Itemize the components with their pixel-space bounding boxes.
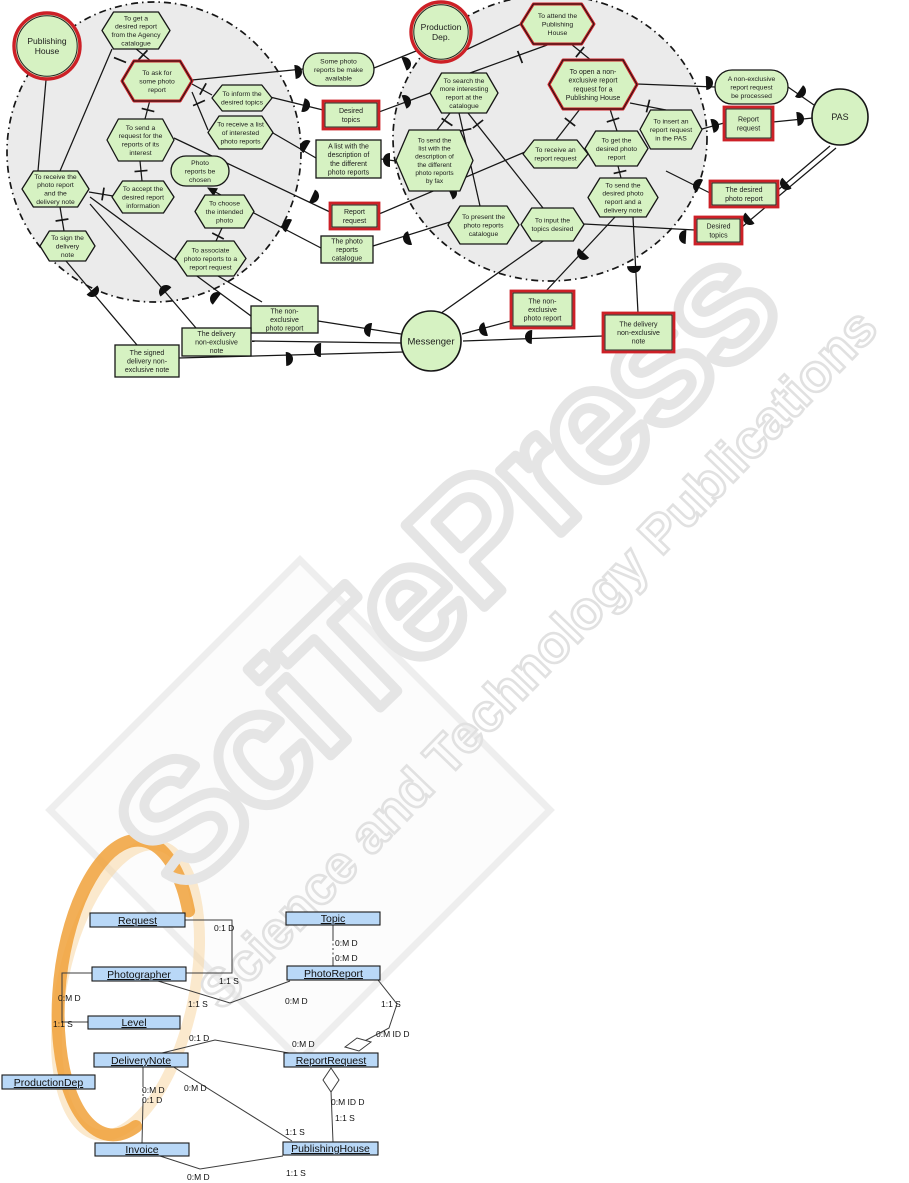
task-receive-photo-report-and-delivery-note: To receive thephoto reportand thedeliver…: [22, 171, 89, 207]
node-label: Desiredtopics: [339, 108, 363, 124]
actor-label: Messenger: [408, 336, 455, 347]
dependency-direction-marker: [710, 118, 720, 133]
task-ask-for-some-photo-report: To ask forsome photoreport: [122, 61, 192, 101]
dependency-direction-marker: [294, 64, 302, 79]
task-insert-report-request-in-pas: To insert anreport requestin the PAS: [640, 110, 702, 149]
resource-desired-topics-right: Desiredtopics: [695, 217, 742, 244]
entity-label: DeliveryNote: [111, 1055, 171, 1067]
cardinality-label: 0:M D: [184, 1083, 207, 1093]
resource-the-signed-delivery-non-exclusive-note: The signeddelivery non-exclusive note: [115, 345, 179, 377]
resource-report-request-left: Reportrequest: [330, 203, 379, 229]
figure-svg: SciTePressScience and Technology Publica…: [0, 0, 909, 1183]
entity-label: ReportRequest: [296, 1055, 367, 1067]
entity-request: Request: [90, 913, 185, 927]
node-label: The non-exclusivephoto report: [524, 298, 562, 322]
dependency-direction-marker: [286, 352, 293, 366]
decomposition-bar: [135, 170, 148, 171]
node-label: To insert anreport requestin the PAS: [650, 118, 692, 142]
task-inform-desired-topics: To inform thedesired topics: [212, 85, 272, 111]
actor-messenger: Messenger: [401, 311, 461, 371]
entity-label: Topic: [321, 913, 346, 925]
entity-level: Level: [88, 1016, 180, 1029]
aggregation-diamond: [323, 1068, 339, 1092]
cardinality-label: 1:1 S: [285, 1127, 305, 1137]
node-label: Reportrequest: [343, 209, 366, 225]
resource-the-non-exclusive-photo-report-black: The non-exclusivephoto report: [251, 306, 318, 333]
node-label: To associatephoto reports to areport req…: [184, 247, 237, 271]
task-present-the-photo-reports-catalogue: To present thephoto reportscatalogue: [448, 206, 519, 244]
dependency-direction-marker: [796, 111, 804, 126]
entity-label: PublishingHouse: [291, 1143, 370, 1155]
actor-label: PAS: [831, 112, 848, 122]
cardinality-label: 0:M ID D: [376, 1029, 410, 1039]
dependency-direction-marker: [383, 153, 390, 167]
cardinality-label: 0:M D: [58, 993, 81, 1003]
entity-photographer: Photographer: [92, 967, 186, 981]
entity-label: ProductionDep: [14, 1077, 84, 1089]
dependency-direction-marker: [706, 76, 713, 90]
cardinality-label: 1:1 S: [53, 1019, 73, 1029]
cardinality-label: 0:M D: [187, 1172, 210, 1182]
resource-the-delivery-non-exclusive-note-black: The deliverynon-exclusivenote: [182, 328, 251, 356]
actor-pas: PAS: [812, 89, 868, 145]
node-label: A non-exclusivereport requestbe processe…: [728, 76, 776, 100]
resource-desired-topics-left: Desiredtopics: [323, 101, 379, 129]
node-label: The desiredphoto report: [725, 187, 763, 203]
dependency-link: [318, 321, 401, 334]
dependency-direction-marker: [301, 98, 311, 113]
entity-reportrequest: ReportRequest: [284, 1053, 378, 1067]
task-associate-photo-reports-to-report-request: To associatephoto reports to areport req…: [175, 241, 246, 276]
resource-the-desired-photo-report: The desiredphoto report: [710, 181, 778, 207]
cardinality-label: 1:1 S: [188, 999, 208, 1009]
resource-the-delivery-non-exclusive-note-red: The deliverynon-exclusivenote: [603, 313, 674, 352]
node-label: To open a non-exclusive reportrequest fo…: [566, 69, 621, 102]
cardinality-label: 0:M D: [142, 1085, 165, 1095]
resource-the-photo-reports-catalogue: The photoreportscatalogue: [321, 236, 373, 263]
task-sign-the-delivery-note: To sign thedeliverynote: [40, 231, 95, 261]
task-send-desired-photo-report-and-delivery-note: To send thedesired photoreport and adeli…: [588, 178, 658, 217]
node-label: To receive anreport request: [534, 147, 576, 162]
cardinality-label: 0:M D: [335, 953, 358, 963]
task-receive-an-report-request: To receive anreport request: [523, 140, 588, 168]
cardinality-label: 0:M D: [285, 996, 308, 1006]
entity-photoreport: PhotoReport: [287, 966, 380, 980]
paper-page: SciTePressScience and Technology Publica…: [0, 0, 909, 1183]
task-receive-list-of-interested-photo-reports: To receive a listof interestedphoto repo…: [208, 116, 273, 149]
dependency-link: [773, 118, 813, 122]
cardinality-label: 0:1 D: [214, 923, 234, 933]
node-label: A list with thedescription ofthe differe…: [328, 143, 370, 176]
task-search-more-interesting-report-at-catalogue: To search themore interestingreport at t…: [430, 73, 498, 113]
task-send-list-by-fax: To send thelist with thedescription ofth…: [396, 130, 473, 191]
task-accept-desired-report-information: To accept thedesired reportinformation: [112, 181, 174, 213]
dependency-direction-marker: [525, 330, 532, 344]
task-input-the-topics-desired: To input thetopics desired: [521, 208, 584, 241]
dependency-direction-marker: [363, 322, 372, 337]
entity-deliverynote: DeliveryNote: [94, 1053, 188, 1067]
resource-list-with-description-of-photo-reports: A list with thedescription ofthe differe…: [316, 140, 381, 178]
node-label: The non-exclusivephoto report: [266, 308, 304, 332]
cardinality-label: 1:1 S: [381, 999, 401, 1009]
dependency-direction-marker: [401, 55, 413, 71]
node-label: Reportrequest: [737, 117, 760, 133]
cardinality-label: 0:M D: [292, 1039, 315, 1049]
cardinality-label: 0:M D: [335, 938, 358, 948]
entity-invoice: Invoice: [95, 1143, 189, 1156]
task-send-request-for-reports-of-interest: To send arequest for thereports of itsin…: [107, 119, 174, 161]
task-get-desired-report-from-agency-catalogue: To get adesired reportfrom the Agencycat…: [102, 12, 170, 49]
entity-label: Photographer: [107, 969, 171, 981]
node-label: To receive a listof interestedphoto repo…: [217, 121, 264, 145]
dependency-link: [252, 341, 402, 343]
resource-the-non-exclusive-photo-report-red: The non-exclusivephoto report: [511, 291, 574, 328]
node-label: The signeddelivery non-exclusive note: [125, 350, 169, 374]
goal-non-exclusive-report-request-be-processed: A non-exclusivereport requestbe processe…: [715, 70, 788, 104]
cardinality-label: 1:1 S: [286, 1168, 306, 1178]
node-label: To accept thedesired reportinformation: [122, 186, 164, 210]
goal-some-photo-reports-be-make-available: Some photoreports be makeavailable: [303, 53, 374, 86]
goal-photo-reports-be-chosen: Photoreports bechosen: [171, 156, 229, 186]
node-label: To send thedesired photoreport and adeli…: [602, 182, 643, 214]
cardinality-label: 1:1 S: [335, 1113, 355, 1123]
node-label: To input thetopics desired: [532, 218, 574, 233]
dependency-link: [218, 276, 262, 302]
er-relationship-line: [172, 1066, 292, 1141]
entity-label: PhotoReport: [304, 968, 363, 980]
resource-report-request-right: Reportrequest: [724, 107, 773, 140]
entity-productiondep: ProductionDep: [2, 1075, 95, 1089]
task-get-the-desired-photo-report: To get thedesired photoreport: [585, 131, 648, 166]
node-label: To inform thedesired topics: [221, 91, 264, 106]
entity-publishinghouse: PublishingHouse: [283, 1142, 378, 1155]
entity-topic: Topic: [286, 912, 380, 925]
er-relationship-line: [160, 1156, 283, 1169]
node-label: Desiredtopics: [706, 224, 730, 240]
dependency-direction-marker: [401, 231, 412, 246]
cardinality-label: 0:M ID D: [331, 1097, 365, 1107]
cardinality-label: 0:1 D: [189, 1033, 209, 1043]
entity-label: Request: [118, 915, 157, 927]
actor-publishing-house: PublishingHouse: [14, 13, 80, 79]
cardinality-label: 0:1 D: [142, 1095, 162, 1105]
task-open-non-exclusive-report-request: To open a non-exclusive reportrequest fo…: [549, 60, 637, 109]
task-choose-the-intended-photo: To choosethe intendedphoto: [195, 195, 254, 228]
entity-label: Invoice: [125, 1144, 158, 1156]
actor-production-dep: ProductionDep.: [411, 2, 471, 62]
entity-label: Level: [121, 1017, 146, 1029]
cardinality-label: 1:1 S: [219, 976, 239, 986]
task-attend-the-publishing-house: To attend thePublishingHouse: [521, 4, 594, 44]
